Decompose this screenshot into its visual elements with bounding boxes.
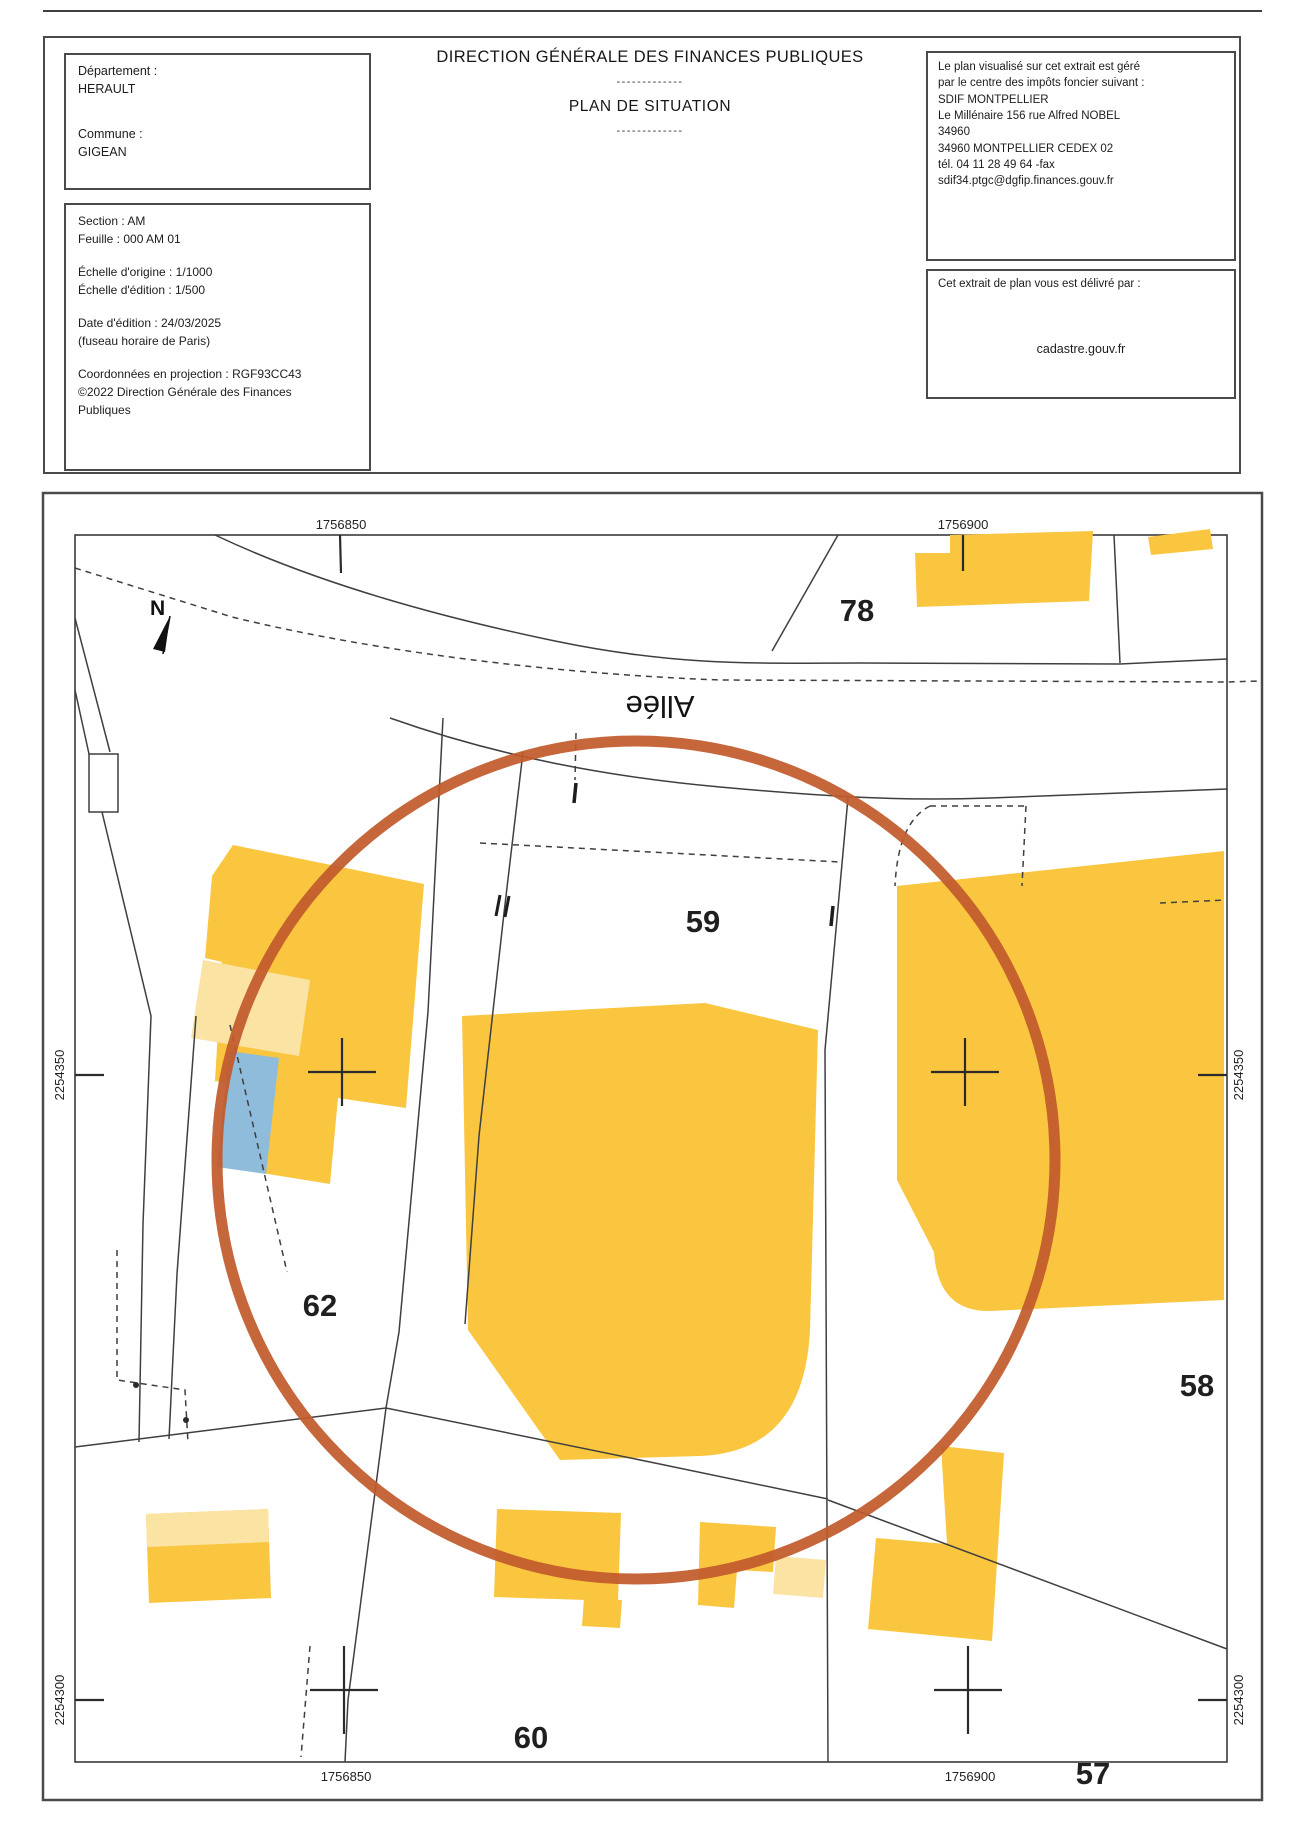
coord-bottom-right: 1756900	[945, 1769, 996, 1784]
building-bottom-left-light	[146, 1509, 269, 1547]
road-name-label: Allée	[626, 689, 695, 724]
parcel-label-59: 59	[686, 904, 720, 939]
coord-left-lower: 2254300	[52, 1675, 67, 1726]
coord-left-upper: 2254350	[52, 1050, 67, 1101]
boundary-dot	[133, 1382, 139, 1388]
parcel-label-57: 57	[1076, 1756, 1110, 1791]
parcel-label-58: 58	[1180, 1368, 1214, 1403]
parcel-label-60: 60	[514, 1720, 548, 1755]
left-margin-structure	[89, 754, 118, 812]
situation-map: N Allée 78 59 62 58 60 57 1756850 175690…	[0, 0, 1300, 1841]
marker-I-west	[574, 783, 576, 803]
coord-right-lower: 2254300	[1231, 1675, 1246, 1726]
frame-tick-top-left	[340, 535, 341, 573]
coord-bottom-left: 1756850	[321, 1769, 372, 1784]
building-bottom-center-stem	[582, 1598, 622, 1628]
marker-I-east	[831, 906, 833, 926]
north-label: N	[150, 597, 165, 620]
coord-top-left: 1756850	[316, 517, 367, 532]
boundary-dot	[183, 1417, 189, 1423]
building-right-main	[897, 851, 1224, 1311]
parcel-label-62: 62	[303, 1288, 337, 1323]
coord-right-upper: 2254350	[1231, 1050, 1246, 1101]
building-center-main	[462, 1003, 818, 1460]
building-bottom-mid-light	[773, 1556, 826, 1598]
parcel-label-78: 78	[840, 593, 874, 628]
coord-top-right: 1756900	[938, 517, 989, 532]
